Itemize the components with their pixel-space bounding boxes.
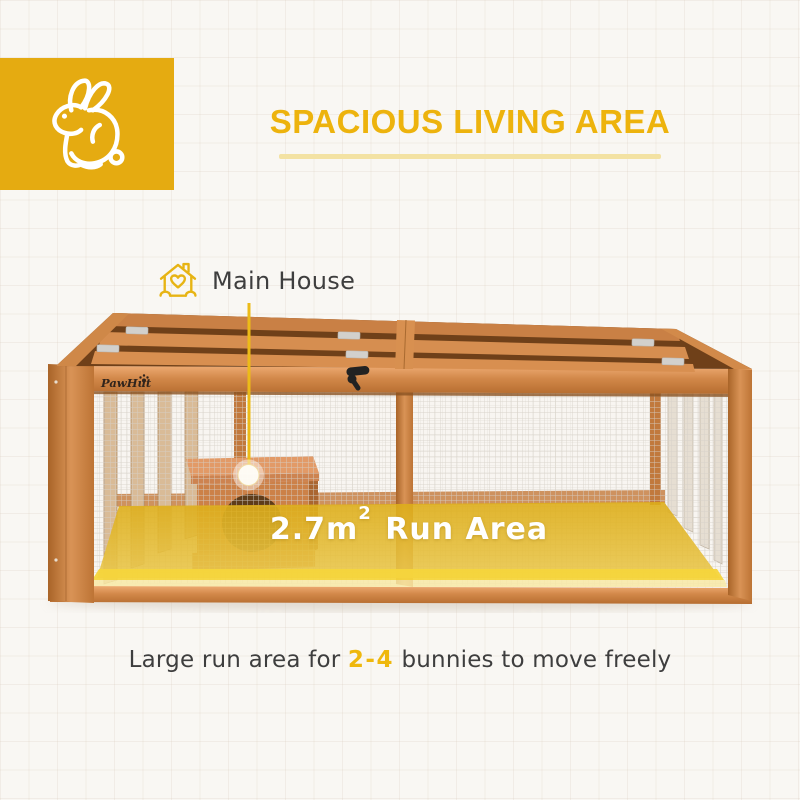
infographic-canvas: SPACIOUS LIVING AREA Main House — [0, 0, 800, 800]
caption-suffix: bunnies to move freely — [394, 647, 671, 673]
brand-badge — [0, 58, 174, 190]
title-underline — [279, 154, 661, 159]
hutch-illustration: PawHut — [40, 295, 760, 620]
run-area-sup: 2 — [358, 503, 372, 524]
roof-frame — [56, 313, 752, 372]
bottom-caption: Large run area for 2-4 bunnies to move f… — [0, 647, 800, 673]
page-title: SPACIOUS LIVING AREA — [270, 103, 671, 141]
run-area-label: 2.7m2 Run Area — [248, 512, 570, 547]
run-area-suffix: Run Area — [374, 512, 548, 547]
header: SPACIOUS LIVING AREA — [252, 103, 688, 159]
rabbit-icon — [38, 75, 136, 173]
callout-label: Main House — [212, 267, 355, 295]
right-corner-post — [728, 368, 752, 601]
bottom-rail — [50, 586, 752, 604]
left-corner-post — [48, 364, 94, 603]
caption-prefix: Large run area for — [129, 647, 348, 673]
svg-text:PawHut: PawHut — [100, 376, 152, 390]
callout-highlight-circle — [233, 460, 264, 491]
run-area-value: 2.7m — [270, 512, 358, 547]
brand-logo: PawHut — [100, 374, 152, 390]
floor-front-strip — [92, 569, 724, 580]
caption-highlight: 2-4 — [348, 647, 394, 673]
